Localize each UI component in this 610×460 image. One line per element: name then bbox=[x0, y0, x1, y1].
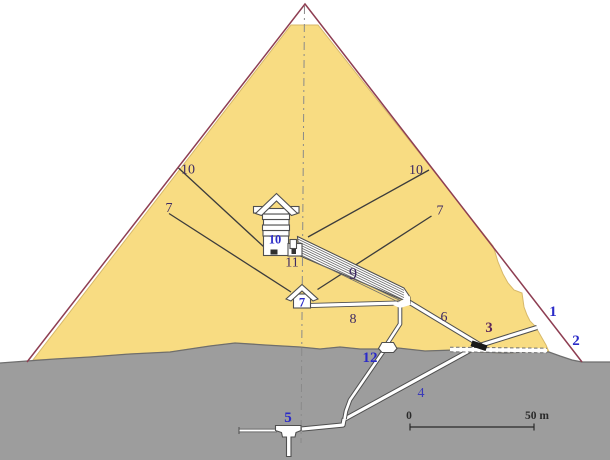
label-kings-shaft-south: 10 bbox=[409, 163, 423, 178]
label-grand-gallery: 9 bbox=[349, 264, 357, 283]
label-robbers-tunnel: 2 bbox=[572, 333, 580, 349]
horizontal-passage bbox=[310, 303, 400, 306]
label-subterranean-chamber: 5 bbox=[284, 410, 292, 426]
grotto bbox=[379, 343, 398, 353]
bedrock bbox=[0, 343, 610, 460]
label-original-entrance: 1 bbox=[549, 304, 557, 320]
scale-zero-label: 0 bbox=[406, 410, 412, 422]
label-queens-shaft-north: 7 bbox=[166, 201, 173, 216]
sarcophagus bbox=[271, 250, 278, 255]
label-queens-shaft-south: 7 bbox=[437, 204, 444, 219]
label-granite-plugs: 3 bbox=[485, 320, 492, 336]
label-ascending-passage: 6 bbox=[441, 310, 448, 325]
portcullis-block bbox=[290, 240, 297, 249]
label-queens-chamber: 7 bbox=[299, 296, 305, 310]
scale-max-label: 50 m bbox=[525, 410, 549, 422]
label-descending-passage: 4 bbox=[418, 386, 425, 401]
label-kings-shaft-north: 10 bbox=[181, 163, 195, 178]
label-antechamber: 11 bbox=[285, 256, 298, 271]
label-well-shaft: 12 bbox=[363, 350, 378, 366]
antechamber-block bbox=[292, 249, 297, 254]
label-kings-chamber: 10 bbox=[269, 233, 282, 247]
label-horizontal-passage: 8 bbox=[350, 312, 357, 327]
pyramid-cross-section-diagram: 0 50 m 1 2 3 4 5 6 7 7 7 8 9 10 10 10 11… bbox=[0, 0, 610, 460]
